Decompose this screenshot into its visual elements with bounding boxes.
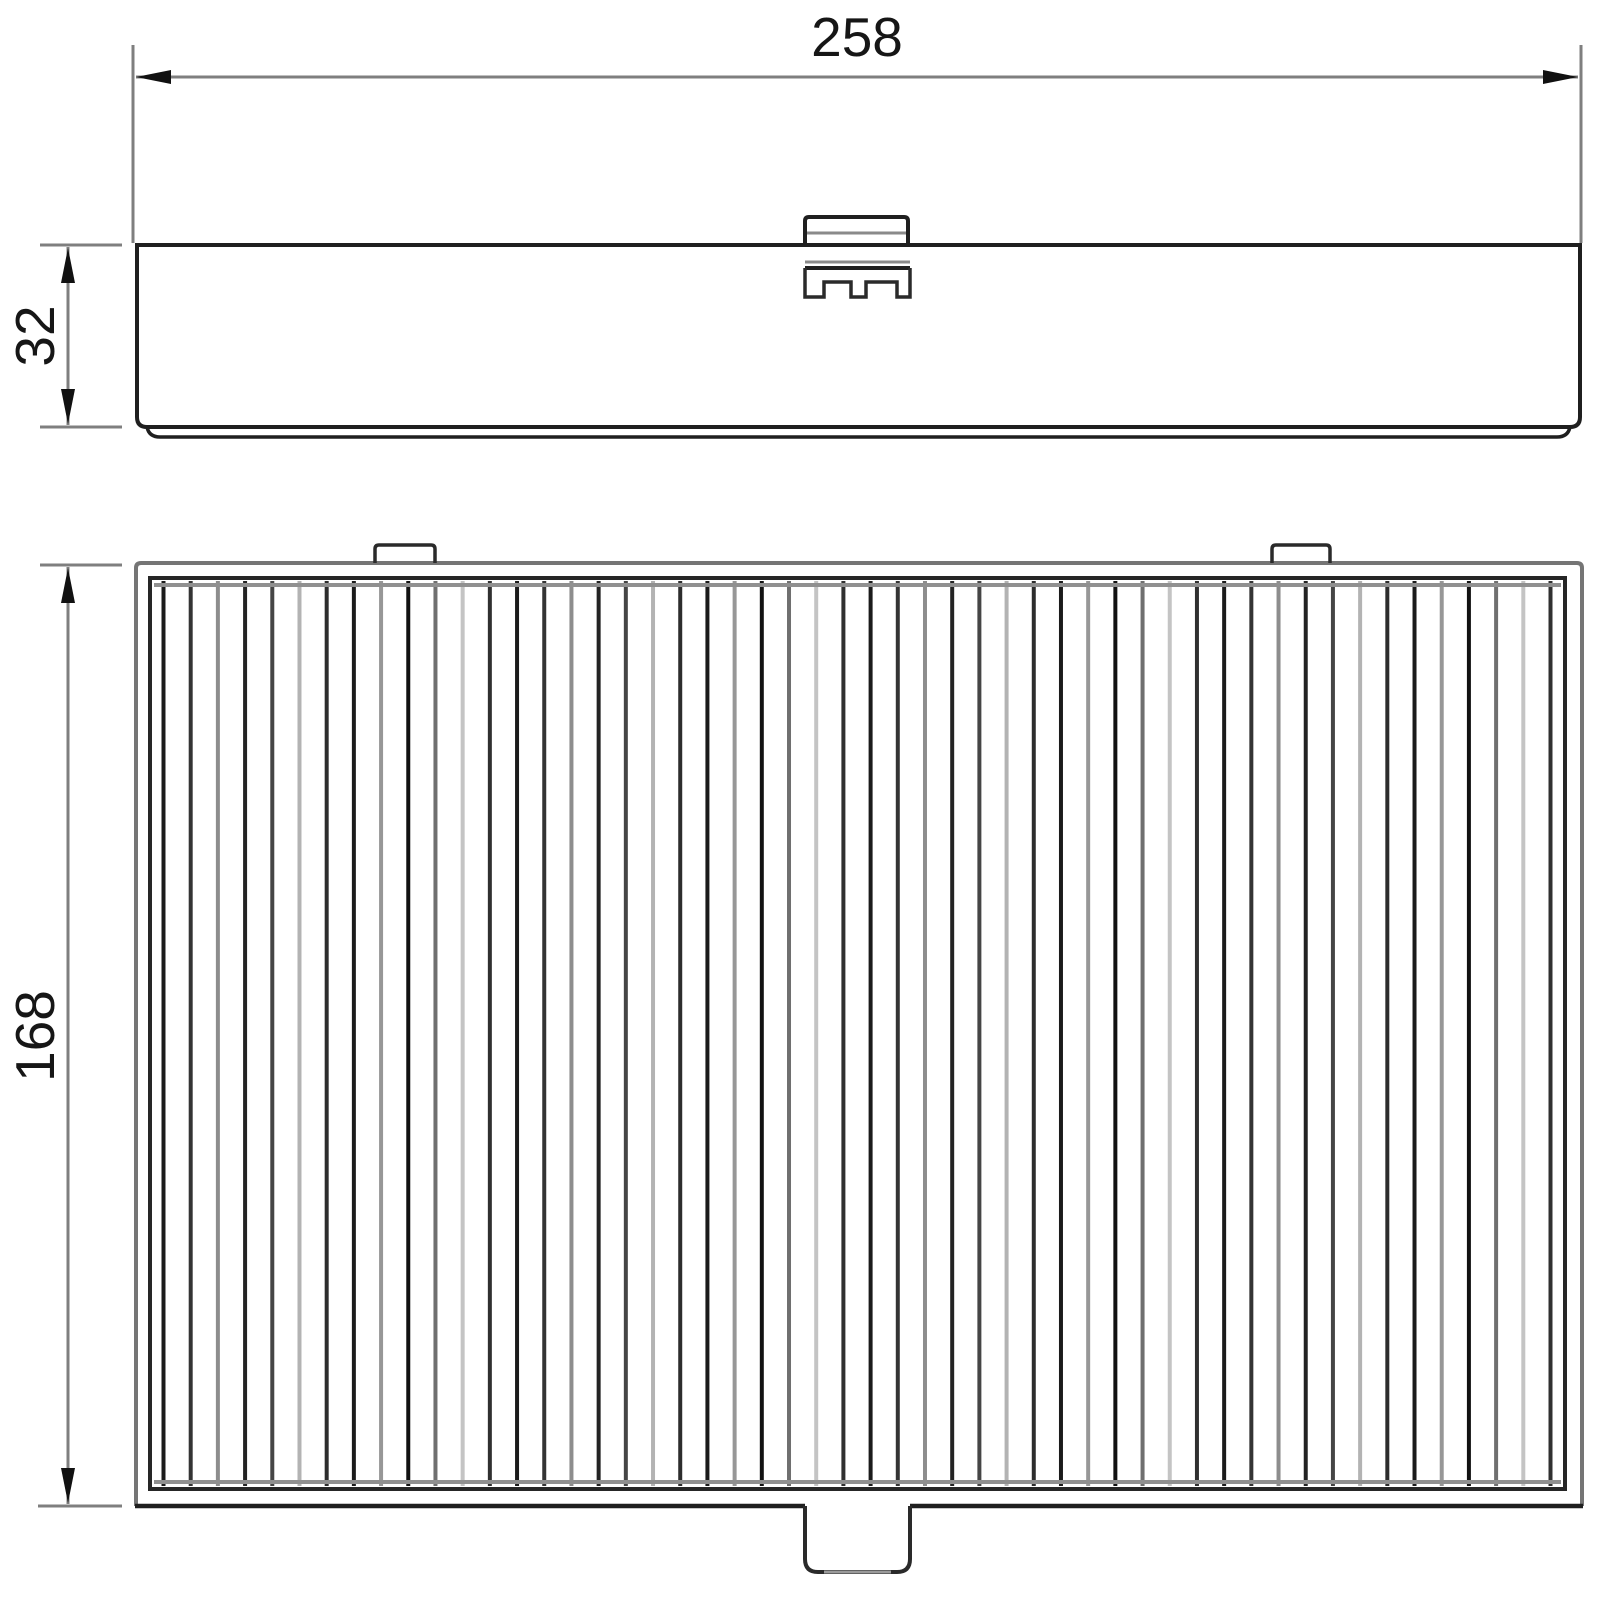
height-dimension-label: 168: [4, 990, 66, 1082]
arrow-up-icon: [61, 248, 75, 283]
arrow-up-icon: [61, 568, 75, 603]
depth-dimension-label: 32: [4, 305, 66, 366]
clip-tab-right: [1272, 545, 1330, 563]
front-view-inner-frame: [150, 578, 1565, 1489]
side-view: [137, 217, 1580, 437]
side-view-outline: [137, 245, 1580, 427]
clip-profile: [805, 268, 910, 297]
filter-technical-drawing: 258 32 168: [0, 0, 1600, 1600]
clip-tab-left: [375, 545, 435, 563]
front-view: [135, 545, 1583, 1572]
arrow-right-icon: [1543, 70, 1578, 84]
width-dimension: [133, 45, 1581, 243]
arrow-down-icon: [61, 1468, 75, 1503]
mounting-tab-bottom: [805, 1506, 910, 1572]
arrow-left-icon: [136, 70, 171, 84]
technical-drawing-canvas: 258 32 168: [0, 0, 1600, 1600]
pleat-lines: [164, 581, 1551, 1486]
width-dimension-label: 258: [811, 6, 903, 68]
arrow-down-icon: [61, 389, 75, 424]
mounting-tab-top: [805, 217, 908, 245]
